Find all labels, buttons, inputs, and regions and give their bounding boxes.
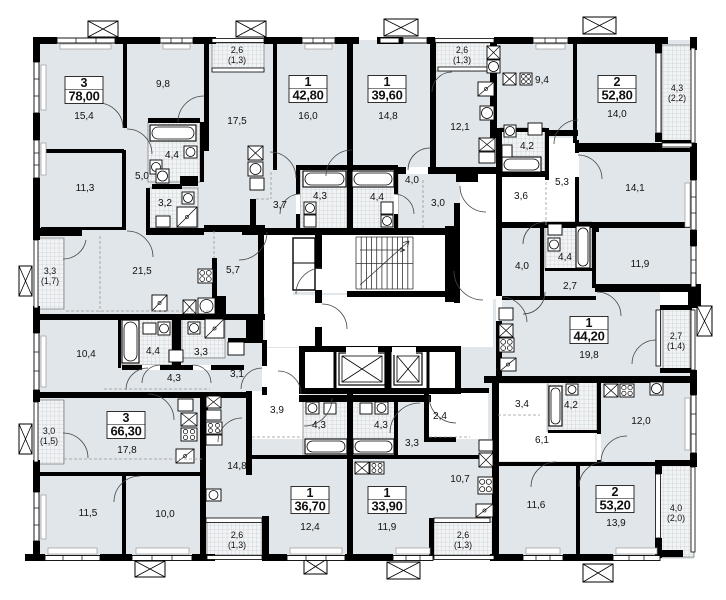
svg-text:(1,3): (1,3) (228, 55, 246, 65)
svg-text:(1,3): (1,3) (228, 540, 246, 550)
svg-text:4,0: 4,0 (515, 261, 529, 272)
svg-text:19,8: 19,8 (579, 350, 599, 361)
svg-text:3,3: 3,3 (194, 347, 208, 358)
svg-text:4,4: 4,4 (146, 346, 160, 357)
svg-text:11,9: 11,9 (631, 259, 650, 270)
svg-text:(1,7): (1,7) (41, 276, 59, 286)
svg-text:44,20: 44,20 (573, 329, 604, 344)
svg-text:4,0: 4,0 (670, 503, 682, 513)
svg-text:3,9: 3,9 (270, 405, 284, 416)
svg-text:66,30: 66,30 (110, 424, 141, 439)
svg-text:11,6: 11,6 (527, 500, 546, 511)
svg-text:2,6: 2,6 (231, 45, 243, 55)
svg-text:52,80: 52,80 (601, 88, 632, 103)
svg-text:4,3: 4,3 (671, 83, 683, 93)
svg-text:10,4: 10,4 (76, 349, 96, 360)
svg-text:4,3: 4,3 (312, 420, 326, 431)
svg-text:3,3: 3,3 (44, 266, 56, 276)
svg-text:10,7: 10,7 (450, 474, 470, 485)
svg-text:12,1: 12,1 (450, 122, 470, 133)
svg-text:2,4: 2,4 (433, 411, 447, 422)
svg-text:4,3: 4,3 (374, 420, 388, 431)
svg-text:4,2: 4,2 (520, 141, 534, 152)
svg-text:39,60: 39,60 (371, 88, 402, 103)
svg-text:2,7: 2,7 (670, 331, 682, 341)
svg-text:17,8: 17,8 (117, 445, 137, 456)
svg-text:78,00: 78,00 (68, 89, 99, 104)
svg-text:12,4: 12,4 (300, 522, 320, 533)
svg-text:4,3: 4,3 (167, 373, 181, 384)
svg-text:14,1: 14,1 (625, 183, 645, 194)
svg-text:4,4: 4,4 (165, 150, 179, 161)
svg-text:3,6: 3,6 (514, 191, 528, 202)
svg-text:13,9: 13,9 (606, 518, 626, 529)
svg-text:36,70: 36,70 (294, 499, 325, 514)
svg-text:5,7: 5,7 (226, 265, 240, 276)
svg-text:9,8: 9,8 (156, 79, 170, 90)
svg-text:2,6: 2,6 (456, 45, 468, 55)
svg-text:3,1: 3,1 (230, 369, 244, 380)
svg-text:3,2: 3,2 (158, 198, 172, 209)
svg-text:33,90: 33,90 (371, 499, 402, 514)
svg-text:4,0: 4,0 (405, 175, 419, 186)
svg-text:(1,3): (1,3) (453, 55, 471, 65)
svg-text:(2,0): (2,0) (667, 513, 685, 523)
svg-text:5,0: 5,0 (135, 171, 149, 182)
svg-text:(1,3): (1,3) (454, 540, 472, 550)
svg-text:16,0: 16,0 (298, 111, 318, 122)
svg-text:11,9: 11,9 (378, 522, 397, 533)
svg-text:3,4: 3,4 (515, 399, 529, 410)
svg-text:17,5: 17,5 (227, 116, 247, 127)
svg-text:11,5: 11,5 (79, 508, 98, 519)
svg-text:14,8: 14,8 (227, 461, 247, 472)
svg-text:53,20: 53,20 (599, 498, 630, 513)
svg-text:(1,4): (1,4) (667, 341, 685, 351)
svg-text:2,6: 2,6 (457, 530, 469, 540)
svg-text:11,3: 11,3 (76, 183, 95, 194)
svg-text:9,4: 9,4 (535, 75, 549, 86)
svg-text:5,3: 5,3 (555, 177, 569, 188)
svg-text:2,6: 2,6 (231, 530, 243, 540)
svg-text:4,4: 4,4 (370, 192, 384, 203)
svg-text:6,1: 6,1 (535, 435, 549, 446)
svg-text:3,0: 3,0 (431, 198, 445, 209)
svg-text:12,0: 12,0 (631, 416, 651, 427)
svg-text:4,2: 4,2 (564, 400, 578, 411)
svg-text:10,0: 10,0 (155, 509, 175, 520)
svg-text:3,0: 3,0 (43, 426, 55, 436)
svg-text:4,4: 4,4 (558, 252, 572, 263)
svg-text:(1,5): (1,5) (40, 436, 58, 446)
svg-text:15,4: 15,4 (74, 111, 94, 122)
svg-text:4,3: 4,3 (313, 191, 327, 202)
svg-text:2,7: 2,7 (563, 281, 577, 292)
svg-text:3,3: 3,3 (405, 438, 419, 449)
svg-text:42,80: 42,80 (292, 88, 323, 103)
svg-text:14,8: 14,8 (378, 111, 398, 122)
svg-text:3,7: 3,7 (273, 200, 287, 211)
svg-text:14,0: 14,0 (607, 109, 627, 120)
svg-text:(2,2): (2,2) (668, 93, 686, 103)
svg-text:21,5: 21,5 (132, 266, 152, 277)
